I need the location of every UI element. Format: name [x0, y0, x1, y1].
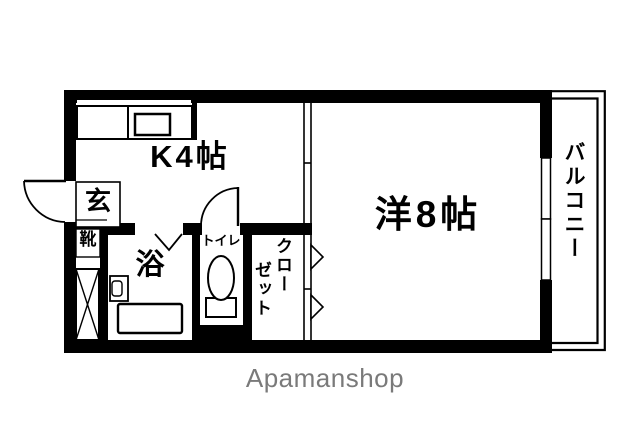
toilet-label: トイレ: [196, 234, 246, 247]
storage-x-box: [76, 269, 99, 340]
balcony-label: バルコニー: [563, 141, 584, 261]
window-panel-lower: [542, 219, 551, 280]
left-wall-upper: [64, 90, 76, 181]
toilet-door: [201, 187, 238, 226]
closet-label-line2: ゼット: [253, 261, 270, 318]
kitchen-label: K4帖: [128, 141, 252, 172]
closet-label-line1: クロー: [274, 237, 291, 294]
entrance-door: [24, 181, 66, 222]
right-wall-lower: [540, 280, 552, 353]
kitchen-counter: [77, 106, 192, 139]
closet-sliding-door: [304, 235, 323, 340]
wall-shoe-bath: [100, 235, 108, 340]
sliding-door-kitchen-room: [304, 103, 311, 223]
entrance-label: 玄: [76, 188, 120, 214]
western-room-label: 洋8帖: [344, 196, 512, 233]
floorplan: K4帖 洋8帖 バルコニー 玄 靴 浴 トイレ クロー ゼット Apamansh…: [0, 0, 640, 427]
bath-label: 浴: [132, 251, 168, 280]
entrance-door-arc: [24, 181, 65, 222]
window-room-balcony: [542, 158, 551, 280]
right-wall-upper: [540, 90, 552, 158]
toilet-icon: [206, 256, 236, 317]
window-panel-upper: [542, 158, 551, 219]
bathtub: [118, 304, 182, 333]
bottom-wall: [64, 340, 552, 353]
wall-bath-toilet: [192, 235, 200, 340]
kitchen-sink: [135, 114, 170, 135]
bath-vanity-basin: [112, 281, 122, 296]
kitchen-window: [77, 100, 191, 103]
closet-door-arrow-upper: [311, 245, 323, 269]
wall-toilet-closet: [243, 235, 252, 340]
bath-door-v-mark: [155, 234, 182, 250]
door-opening-bath: [135, 223, 183, 235]
toilet-recess-fill: [200, 325, 243, 340]
watermark: Apamanshop: [155, 365, 495, 391]
closet-door-arrow-lower: [311, 295, 323, 319]
toilet-bowl: [208, 256, 234, 300]
toilet-door-arc: [201, 188, 238, 226]
shoe-cabinet-label: 靴: [75, 231, 101, 248]
